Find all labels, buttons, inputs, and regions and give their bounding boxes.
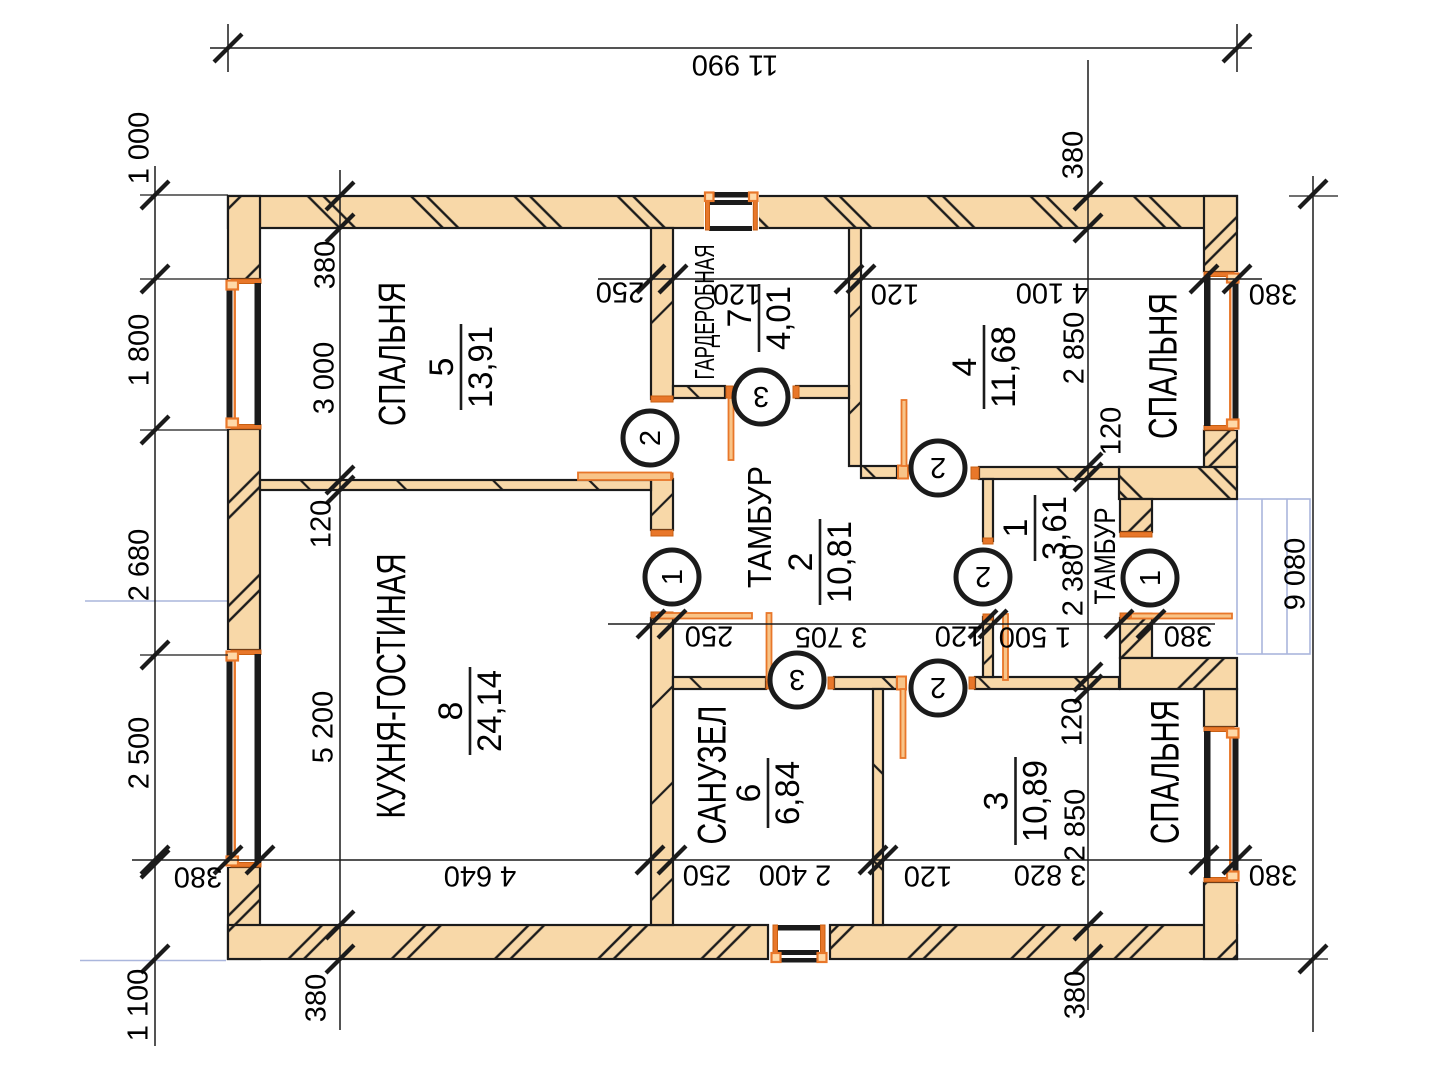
svg-text:8: 8 (432, 702, 470, 721)
svg-text:1 000: 1 000 (123, 112, 155, 185)
svg-text:380: 380 (174, 861, 222, 893)
svg-text:2 400: 2 400 (759, 859, 832, 891)
svg-text:СПАЛЬНЯ: СПАЛЬНЯ (1143, 700, 1187, 844)
svg-text:380: 380 (1249, 859, 1297, 891)
svg-text:3 820: 3 820 (1014, 859, 1087, 891)
svg-text:120: 120 (871, 278, 919, 310)
svg-text:120: 120 (1095, 407, 1127, 455)
svg-text:250: 250 (685, 620, 733, 652)
svg-text:2 850: 2 850 (1059, 789, 1091, 862)
svg-text:4 640: 4 640 (444, 860, 517, 892)
svg-text:120: 120 (1056, 698, 1088, 746)
svg-text:ГАРДЕРОБНАЯ: ГАРДЕРОБНАЯ (689, 245, 720, 380)
svg-text:1 800: 1 800 (123, 314, 155, 387)
svg-text:2: 2 (930, 451, 946, 483)
svg-text:1 500: 1 500 (999, 621, 1072, 653)
svg-text:2 500: 2 500 (123, 717, 155, 790)
svg-text:2: 2 (782, 553, 820, 572)
svg-text:380: 380 (300, 974, 332, 1022)
svg-text:6,84: 6,84 (769, 761, 807, 825)
svg-text:380: 380 (1059, 971, 1091, 1019)
svg-text:250: 250 (683, 859, 731, 891)
svg-text:9 080: 9 080 (1279, 538, 1311, 611)
svg-text:1: 1 (657, 569, 689, 585)
svg-text:120: 120 (904, 860, 952, 892)
svg-text:7: 7 (721, 309, 759, 328)
svg-text:2 850: 2 850 (1058, 312, 1090, 385)
svg-text:ТАМБУР: ТАМБУР (1089, 508, 1122, 605)
svg-text:1: 1 (997, 519, 1035, 538)
svg-text:2: 2 (635, 430, 667, 446)
svg-text:10,81: 10,81 (821, 521, 859, 603)
svg-text:250: 250 (596, 276, 644, 308)
svg-text:2: 2 (975, 560, 991, 592)
svg-text:2 680: 2 680 (123, 529, 155, 602)
svg-text:1 100: 1 100 (122, 969, 154, 1042)
svg-text:120: 120 (305, 500, 337, 548)
svg-text:24,14: 24,14 (471, 670, 509, 752)
svg-text:13,91: 13,91 (462, 326, 500, 408)
svg-text:11,68: 11,68 (985, 326, 1023, 408)
svg-text:4: 4 (946, 358, 984, 377)
svg-text:3 705: 3 705 (795, 621, 868, 653)
svg-text:СПАЛЬНЯ: СПАЛЬНЯ (372, 282, 414, 426)
svg-text:3 000: 3 000 (308, 342, 340, 415)
svg-text:3,61: 3,61 (1036, 496, 1074, 560)
svg-text:380: 380 (309, 241, 341, 289)
svg-text:10,89: 10,89 (1017, 760, 1055, 842)
svg-text:3: 3 (789, 663, 805, 695)
svg-text:380: 380 (1057, 131, 1089, 179)
svg-text:120: 120 (935, 620, 983, 652)
svg-text:380: 380 (1249, 278, 1297, 310)
svg-text:4,01: 4,01 (760, 286, 798, 350)
svg-text:5: 5 (423, 358, 461, 377)
svg-text:3: 3 (978, 792, 1016, 811)
svg-text:6: 6 (730, 784, 768, 803)
svg-text:КУХНЯ-ГОСТИНАЯ: КУХНЯ-ГОСТИНАЯ (368, 554, 414, 819)
svg-text:2: 2 (930, 671, 946, 703)
svg-text:380: 380 (1164, 620, 1212, 652)
svg-text:11 990: 11 990 (692, 49, 779, 81)
svg-text:5 200: 5 200 (307, 691, 339, 764)
svg-text:СПАЛЬНЯ: СПАЛЬНЯ (1141, 293, 1185, 439)
svg-text:4 100: 4 100 (1016, 277, 1089, 309)
svg-text:ТАМБУР: ТАМБУР (741, 466, 778, 588)
svg-text:1: 1 (1135, 570, 1167, 586)
svg-text:3: 3 (753, 380, 769, 412)
svg-text:САНУЗЕЛ: САНУЗЕЛ (690, 706, 734, 845)
